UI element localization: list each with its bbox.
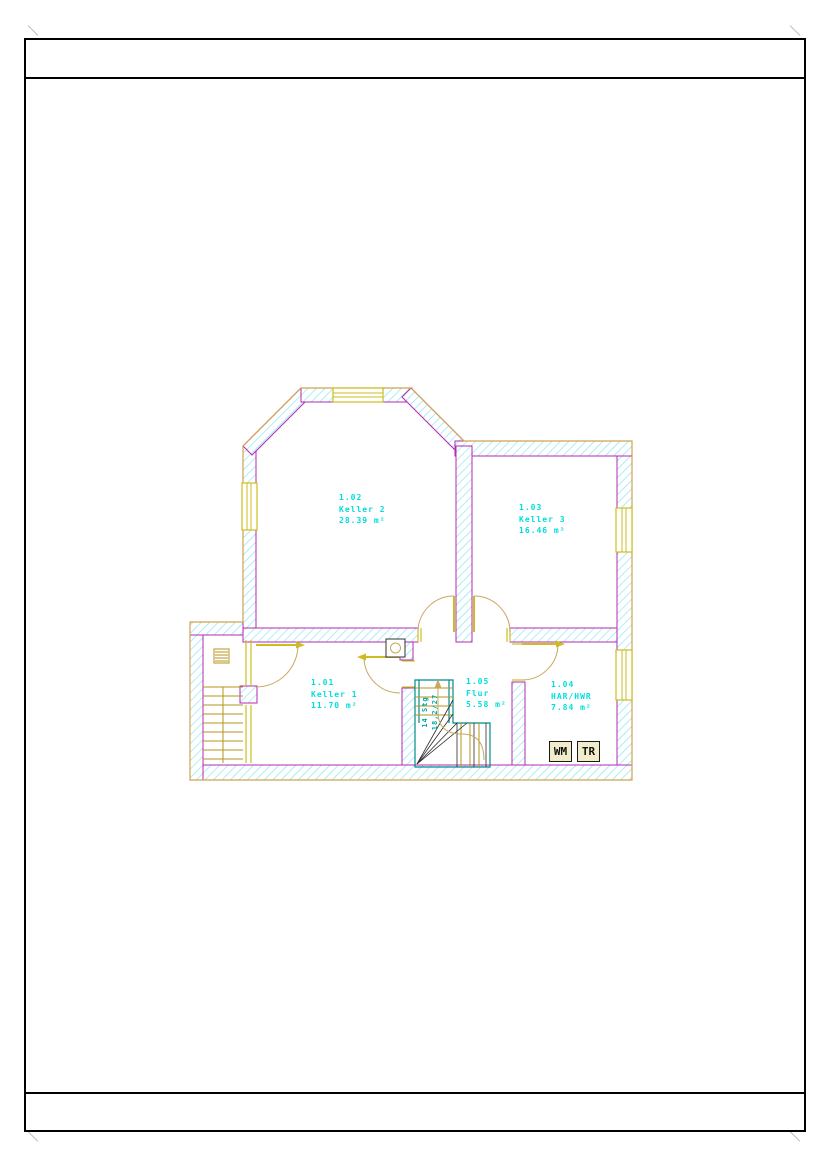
room-name: Keller 3 [519,514,566,526]
room-label-har-hwr: 1.04 HAR/HWR 7.84 m² [551,679,592,714]
room-label-keller2: 1.02 Keller 2 28.39 m² [339,492,386,527]
room-label-flur: 1.05 Flur 5.58 m² [466,676,507,711]
room-number: 1.03 [519,502,566,514]
corner-mark [790,1131,801,1142]
window-left [242,483,257,530]
corner-mark [28,25,39,36]
door-flur-keller1 [357,654,400,694]
room-label-keller3: 1.03 Keller 3 16.46 m² [519,502,566,537]
drawing-sheet: 1.01 Keller 1 11.70 m² 1.02 Keller 2 28.… [0,0,826,1169]
door-annex-keller1 [256,642,305,688]
stair-annotation: 14 Stg 18,2/27 [418,673,442,751]
room-number: 1.02 [339,492,386,504]
room-number: 1.05 [466,676,507,688]
room-area: 28.39 m² [339,515,386,527]
corner-mark [790,25,801,36]
washing-machine-box: WM [549,741,572,762]
exterior-stair [203,687,243,763]
room-name: HAR/HWR [551,691,592,703]
room-area: 7.84 m² [551,702,592,714]
corner-mark [28,1131,39,1142]
window-bay-top [333,388,383,402]
room-name: Keller 1 [311,689,358,701]
room-name: Keller 2 [339,504,386,516]
stair-note-line1: 14 Stg [420,696,430,727]
room-area: 11.70 m² [311,700,358,712]
dryer-box: TR [577,741,600,762]
room-number: 1.01 [311,677,358,689]
grate-icon [214,649,229,663]
floor-plan: 1.01 Keller 1 11.70 m² 1.02 Keller 2 28.… [185,372,645,787]
floor-plan-drawing [185,372,645,787]
window-right-keller3 [616,508,632,552]
room-label-keller1: 1.01 Keller 1 11.70 m² [311,677,358,712]
door-flur-har [522,641,565,681]
door-flur-keller2 [418,596,454,632]
room-area: 5.58 m² [466,699,507,711]
window-right-har [616,650,632,700]
room-name: Flur [466,688,507,700]
room-number: 1.04 [551,679,592,691]
title-block-bottom [24,1092,806,1132]
title-block-top [24,38,806,79]
room-area: 16.46 m² [519,525,566,537]
door-flur-keller3 [474,596,510,632]
windows [242,388,632,700]
drain-symbol [386,639,405,657]
stair-note-line2: 18,2/27 [430,694,440,731]
